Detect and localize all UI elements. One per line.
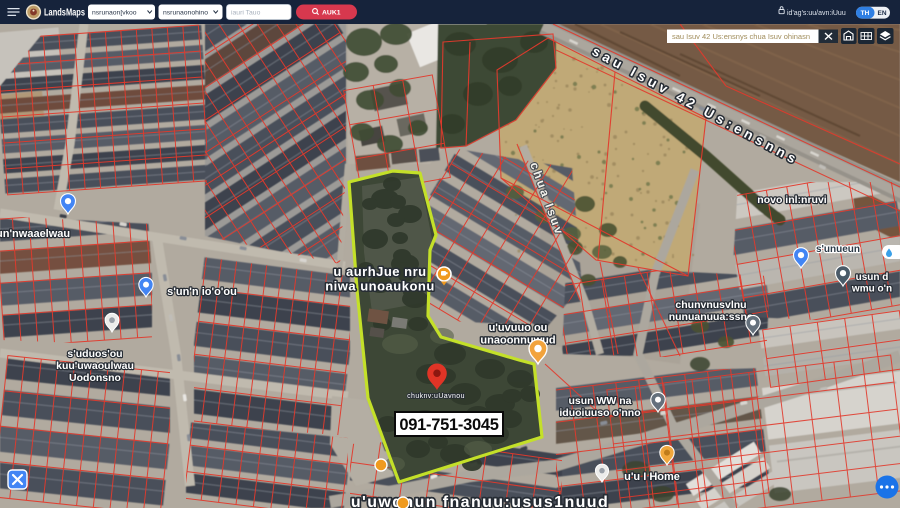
svg-text:un'nwaaelwau: un'nwaaelwau xyxy=(0,228,70,240)
svg-text:TH: TH xyxy=(861,10,870,17)
svg-text:chuknv:uUavnou: chuknv:uUavnou xyxy=(407,393,465,400)
svg-text:niwa unoaukonu: niwa unoaukonu xyxy=(325,279,435,294)
svg-text:nsrunaonohino: nsrunaonohino xyxy=(163,10,208,17)
svg-text:u aurhJue nru: u aurhJue nru xyxy=(333,264,426,279)
svg-text:s'un'n io'o'ou: s'un'n io'o'ou xyxy=(167,286,237,298)
svg-text:wmu o'n: wmu o'n xyxy=(851,284,892,295)
svg-text:091-751-3045: 091-751-3045 xyxy=(399,416,498,434)
svg-text:s'unueun: s'unueun xyxy=(816,244,860,255)
svg-text:Uodonsno: Uodonsno xyxy=(69,372,121,384)
svg-text:LandsMaps: LandsMaps xyxy=(44,7,85,18)
svg-text:nunuanuua:ssno: nunuanuua:ssno xyxy=(669,311,754,323)
svg-text:chunvnusvlnu: chunvnusvlnu xyxy=(675,299,746,311)
svg-text:EN: EN xyxy=(877,10,886,17)
svg-text:id'ag's:uu/avn:iUuu: id'ag's:uu/avn:iUuu xyxy=(787,10,846,17)
svg-text:iauri Tauo: iauri Tauo xyxy=(231,10,261,17)
svg-text:AUK1: AUK1 xyxy=(322,9,341,16)
svg-text:kuu'uwaoulwau: kuu'uwaoulwau xyxy=(56,360,134,372)
svg-text:sau Isuv 42 Us:ensnys chua Isu: sau Isuv 42 Us:ensnys chua Isuv ohinasn xyxy=(672,32,810,41)
svg-text:nsrunaon[vkoo: nsrunaon[vkoo xyxy=(92,10,137,17)
svg-text:u'uwqnun fnanuu:usus1nuud: u'uwqnun fnanuu:usus1nuud xyxy=(351,494,609,508)
svg-text:u'u I Home: u'u I Home xyxy=(624,471,680,483)
svg-text:novo inl:nruvi: novo inl:nruvi xyxy=(757,194,826,206)
svg-text:s'uduos'ou: s'uduos'ou xyxy=(67,348,122,360)
svg-text:usun WW na: usun WW na xyxy=(569,395,632,407)
svg-text:usun d: usun d xyxy=(856,272,889,283)
svg-text:iduoiuuso o'nno: iduoiuuso o'nno xyxy=(559,407,640,419)
svg-text:u'uvuuo ou: u'uvuuo ou xyxy=(489,322,548,334)
